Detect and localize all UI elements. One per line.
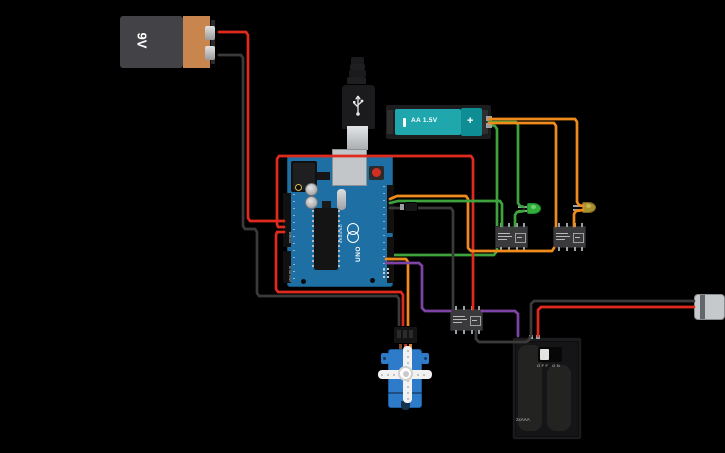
wire-mount-motor-red[interactable]	[538, 307, 694, 336]
wire-aa-orange-led[interactable]	[489, 119, 583, 206]
wire-digital-purple[interactable]	[386, 263, 450, 311]
wire-5v-loop[interactable]	[277, 156, 473, 309]
servo-connector-slot-3	[409, 330, 413, 338]
servo-connector-slot-2	[403, 330, 407, 338]
servo-connector[interactable]	[393, 326, 418, 344]
wire-9v-positive[interactable]	[219, 32, 284, 221]
wire-led-green-relay[interactable]	[515, 211, 524, 226]
wire-aa-green-led[interactable]	[489, 122, 524, 207]
wire-servo-power[interactable]	[276, 232, 403, 331]
wire-led-yellow-relay[interactable]	[574, 210, 583, 226]
inline-connector-body	[404, 202, 418, 212]
inline-wire-connector[interactable]	[400, 202, 418, 212]
circuit-canvas[interactable]: 9V	[0, 0, 725, 453]
wire-relay-mount-black[interactable]	[476, 331, 530, 342]
wire-9v-negative[interactable]	[219, 55, 399, 331]
servo-connector-slot-1	[397, 330, 401, 338]
wire-relay-purple[interactable]	[482, 311, 518, 336]
wire-layer-over	[0, 0, 725, 453]
